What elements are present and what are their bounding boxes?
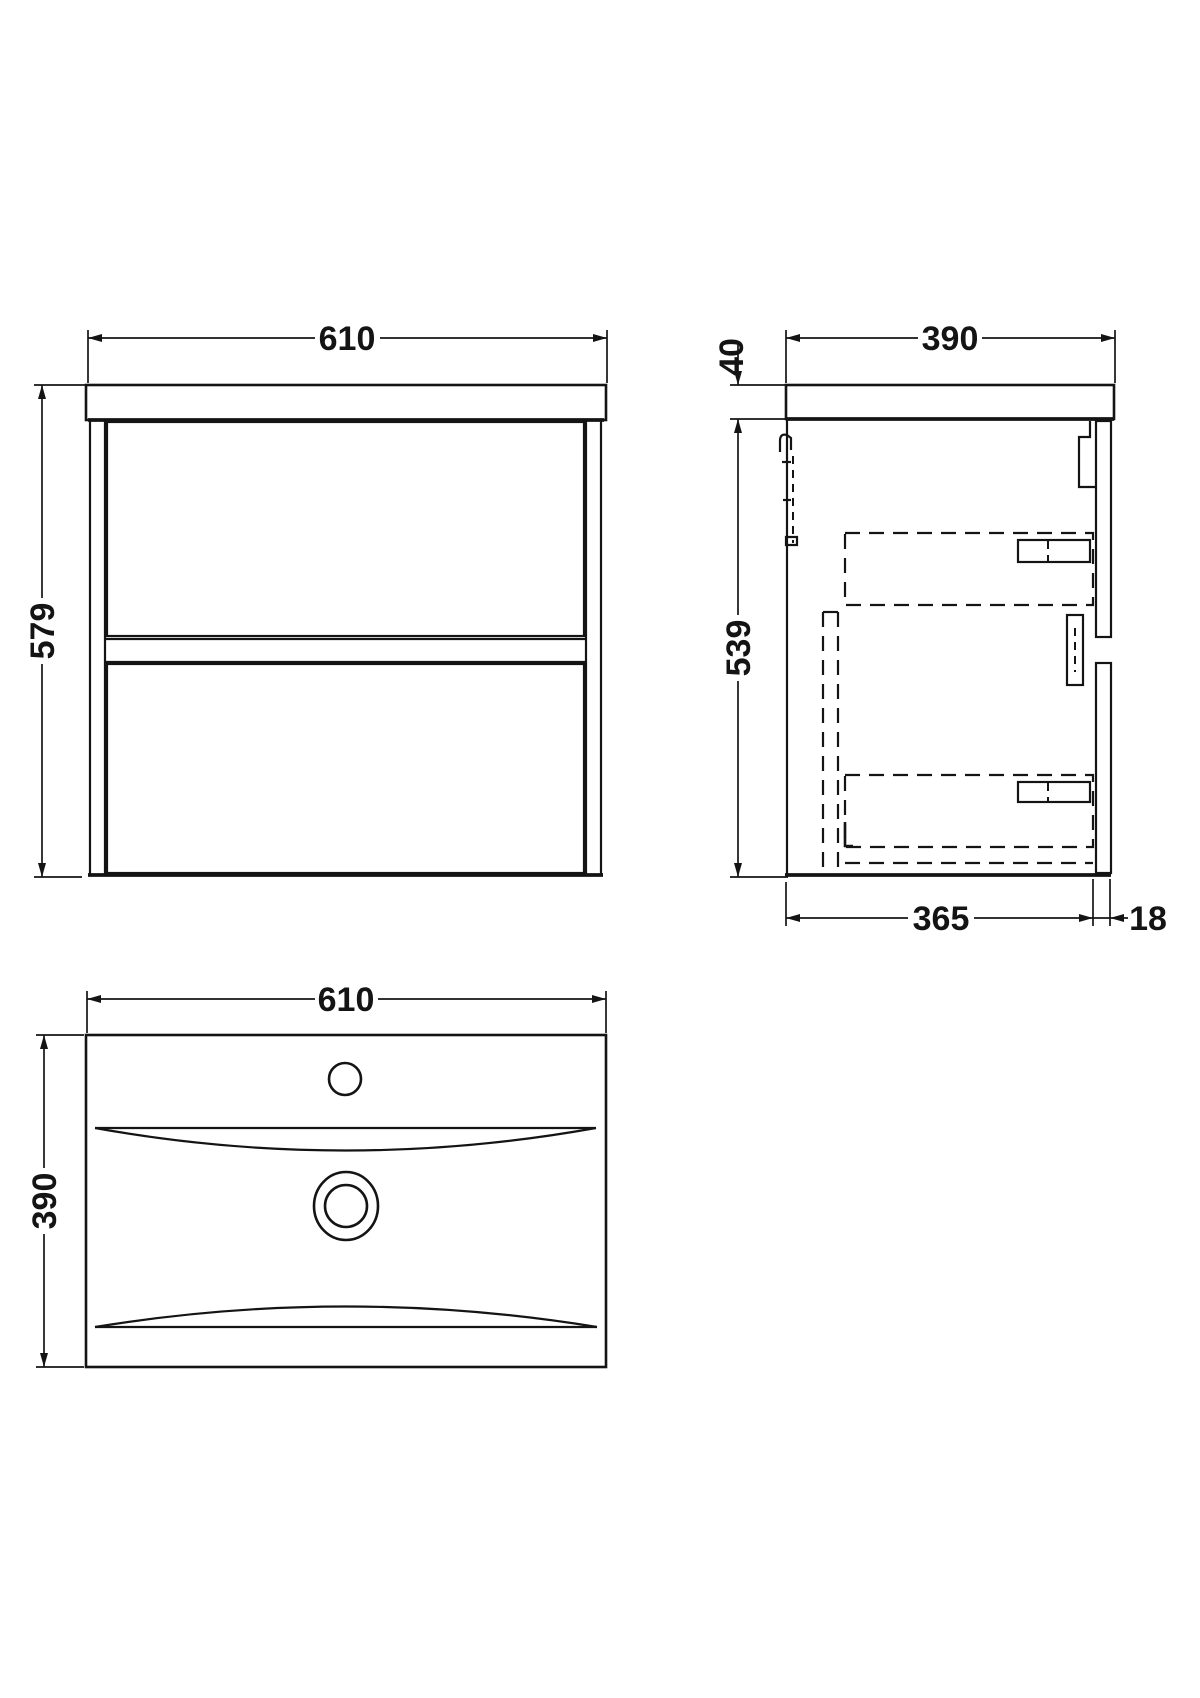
top-fixing-bracket xyxy=(1079,421,1096,487)
side-depth-dimension: 390 xyxy=(786,320,1115,383)
plan-depth-dimension: 390 xyxy=(26,1035,84,1367)
front-view: 610 579 xyxy=(24,320,607,877)
mid-runner-bracket xyxy=(1067,615,1083,685)
tap-hole xyxy=(329,1063,361,1095)
basin-inner-edge-bottom xyxy=(95,1307,597,1328)
front-drawer-gap-rail xyxy=(105,639,586,662)
side-drawer-front-top xyxy=(1096,421,1111,637)
side-depth-label: 390 xyxy=(922,320,979,358)
side-worktop-thickness-dimension: 40 xyxy=(713,338,788,433)
back-rail-hidden xyxy=(823,612,838,873)
side-front-thickness-label: 18 xyxy=(1129,900,1167,938)
front-width-dimension: 610 xyxy=(88,320,607,383)
front-drawer-top xyxy=(107,422,584,636)
wall-bracket xyxy=(780,435,797,545)
front-drawer-bottom xyxy=(107,664,584,873)
side-worktop-thickness-label: 40 xyxy=(713,338,751,376)
technical-drawing-page: 610 579 xyxy=(0,0,1200,1698)
vanity-unit-technical-drawing: 610 579 xyxy=(0,0,1200,1698)
side-internal-depth-dimension: 365 xyxy=(786,879,1093,938)
side-height-label: 539 xyxy=(720,620,758,677)
side-drawer-front-bottom xyxy=(1096,663,1111,873)
front-cabinet-sides xyxy=(90,420,601,875)
side-view: 390 40 539 xyxy=(713,320,1167,938)
side-front-thickness-dimension: 18 xyxy=(1093,879,1167,938)
front-worktop xyxy=(86,385,606,420)
basin-inner-edge-top xyxy=(95,1128,596,1151)
drawer-box-bottom-hidden xyxy=(845,775,1093,863)
front-height-dimension: 579 xyxy=(24,385,86,877)
basin-waste-drain xyxy=(314,1172,378,1240)
front-width-label: 610 xyxy=(319,320,376,358)
side-worktop xyxy=(786,385,1114,419)
drawer-box-top-hidden xyxy=(845,533,1093,605)
plan-width-label: 610 xyxy=(318,981,375,1019)
plan-width-dimension: 610 xyxy=(87,981,606,1033)
plan-view: 610 390 xyxy=(26,981,606,1367)
plan-depth-label: 390 xyxy=(26,1173,64,1230)
side-internal-depth-label: 365 xyxy=(913,900,970,938)
side-height-dimension: 539 xyxy=(720,419,788,877)
front-height-label: 579 xyxy=(24,603,62,660)
